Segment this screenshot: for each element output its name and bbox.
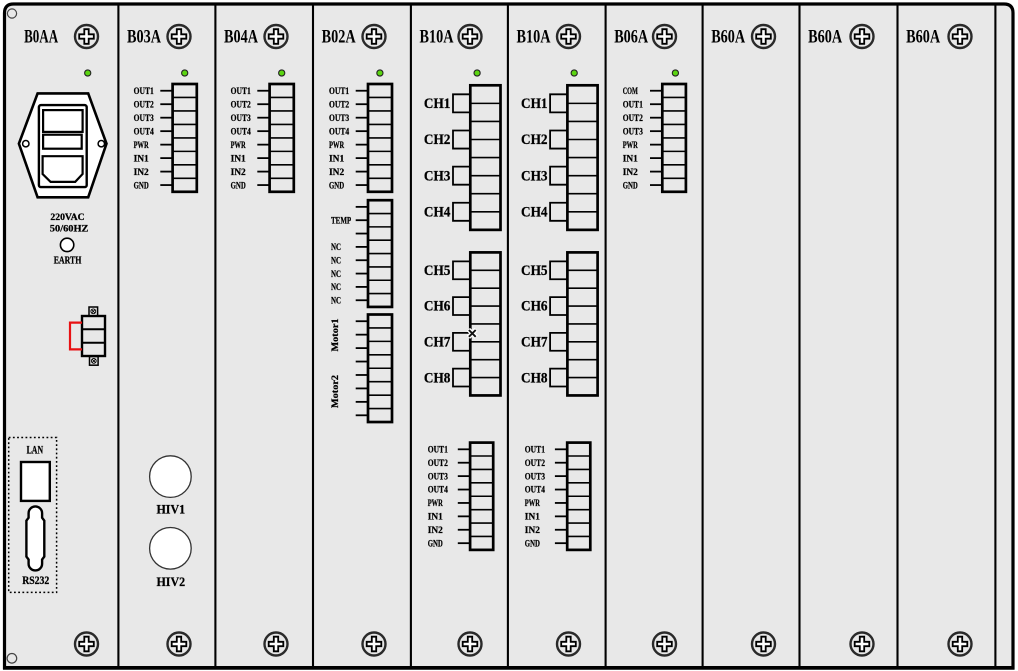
svg-text:B10A: B10A	[420, 27, 454, 48]
svg-text:B04A: B04A	[224, 27, 258, 48]
svg-text:HIV2: HIV2	[157, 575, 186, 589]
svg-text:PWR: PWR	[428, 499, 443, 509]
svg-text:OUT1: OUT1	[428, 446, 448, 456]
svg-text:GND: GND	[525, 539, 540, 549]
svg-text:B60A: B60A	[906, 27, 940, 48]
svg-text:B60A: B60A	[711, 27, 745, 48]
svg-text:NC: NC	[331, 296, 341, 306]
svg-text:CH5: CH5	[424, 263, 451, 279]
svg-text:OUT1: OUT1	[329, 87, 349, 97]
svg-text:PWR: PWR	[329, 141, 344, 151]
svg-text:LAN: LAN	[27, 444, 43, 456]
svg-text:RS232: RS232	[22, 575, 49, 587]
svg-text:OUT1: OUT1	[134, 87, 154, 97]
svg-text:220VAC: 220VAC	[50, 213, 84, 223]
svg-text:IN2: IN2	[329, 168, 344, 178]
svg-text:CH6: CH6	[424, 299, 451, 315]
svg-text:CH3: CH3	[424, 168, 451, 184]
svg-text:IN1: IN1	[134, 154, 149, 164]
svg-text:GND: GND	[428, 539, 443, 549]
svg-text:OUT4: OUT4	[134, 127, 154, 137]
svg-text:PWR: PWR	[134, 141, 149, 151]
svg-text:CH5: CH5	[521, 263, 548, 279]
svg-text:IN1: IN1	[623, 154, 638, 164]
svg-text:CH4: CH4	[424, 205, 451, 221]
svg-text:CH4: CH4	[521, 205, 548, 221]
svg-text:COM: COM	[623, 87, 638, 97]
svg-text:IN2: IN2	[134, 168, 149, 178]
svg-text:OUT1: OUT1	[623, 100, 643, 110]
svg-text:CH1: CH1	[521, 96, 548, 112]
svg-text:NC: NC	[331, 283, 341, 293]
svg-text:NC: NC	[331, 243, 341, 253]
svg-text:OUT3: OUT3	[525, 472, 545, 482]
svg-text:Motor1: Motor1	[331, 318, 341, 351]
svg-text:GND: GND	[231, 181, 246, 191]
svg-text:IN1: IN1	[231, 154, 246, 164]
svg-text:IN1: IN1	[329, 154, 344, 164]
svg-text:OUT2: OUT2	[134, 100, 154, 110]
svg-text:NC: NC	[331, 256, 341, 266]
svg-text:OUT4: OUT4	[428, 486, 448, 496]
svg-text:IN2: IN2	[428, 526, 443, 536]
svg-text:HIV1: HIV1	[157, 503, 186, 517]
svg-text:OUT4: OUT4	[329, 127, 349, 137]
svg-text:IN2: IN2	[525, 526, 540, 536]
svg-text:PWR: PWR	[623, 141, 638, 151]
svg-text:CH7: CH7	[424, 335, 451, 351]
svg-text:CH7: CH7	[521, 335, 548, 351]
svg-text:OUT4: OUT4	[231, 127, 251, 137]
svg-text:OUT1: OUT1	[525, 446, 545, 456]
svg-text:NC: NC	[331, 270, 341, 280]
svg-text:OUT1: OUT1	[231, 87, 251, 97]
svg-text:Motor2: Motor2	[331, 375, 341, 408]
svg-text:OUT4: OUT4	[525, 486, 545, 496]
svg-text:GND: GND	[623, 181, 638, 191]
svg-text:CH6: CH6	[521, 299, 548, 315]
svg-text:OUT2: OUT2	[623, 114, 643, 124]
svg-text:IN2: IN2	[231, 168, 246, 178]
svg-text:OUT2: OUT2	[329, 100, 349, 110]
svg-text:PWR: PWR	[525, 499, 540, 509]
svg-text:OUT3: OUT3	[134, 114, 154, 124]
svg-text:GND: GND	[329, 181, 344, 191]
svg-text:CH2: CH2	[424, 132, 451, 148]
svg-text:IN1: IN1	[525, 513, 540, 523]
svg-text:B60A: B60A	[808, 27, 842, 48]
svg-text:OUT2: OUT2	[525, 459, 545, 469]
svg-text:EARTH: EARTH	[54, 255, 82, 266]
svg-text:B06A: B06A	[614, 27, 648, 48]
svg-text:CH8: CH8	[424, 370, 451, 386]
svg-text:B0AA: B0AA	[24, 27, 58, 48]
svg-text:CH8: CH8	[521, 370, 548, 386]
svg-text:B03A: B03A	[127, 27, 161, 48]
svg-text:OUT3: OUT3	[428, 472, 448, 482]
svg-text:OUT3: OUT3	[231, 114, 251, 124]
svg-text:OUT2: OUT2	[231, 100, 251, 110]
svg-text:IN1: IN1	[428, 513, 443, 523]
svg-text:TEMP: TEMP	[331, 216, 351, 226]
svg-text:PWR: PWR	[231, 141, 246, 151]
svg-text:CH1: CH1	[424, 96, 451, 112]
svg-text:CH3: CH3	[521, 168, 548, 184]
svg-text:IN2: IN2	[623, 168, 638, 178]
svg-text:OUT3: OUT3	[329, 114, 349, 124]
svg-text:GND: GND	[134, 181, 149, 191]
svg-text:OUT2: OUT2	[428, 459, 448, 469]
svg-text:B02A: B02A	[322, 27, 356, 48]
svg-text:B10A: B10A	[517, 27, 551, 48]
svg-text:50/60HZ: 50/60HZ	[50, 225, 89, 235]
svg-text:CH2: CH2	[521, 132, 548, 148]
svg-text:OUT3: OUT3	[623, 127, 643, 137]
